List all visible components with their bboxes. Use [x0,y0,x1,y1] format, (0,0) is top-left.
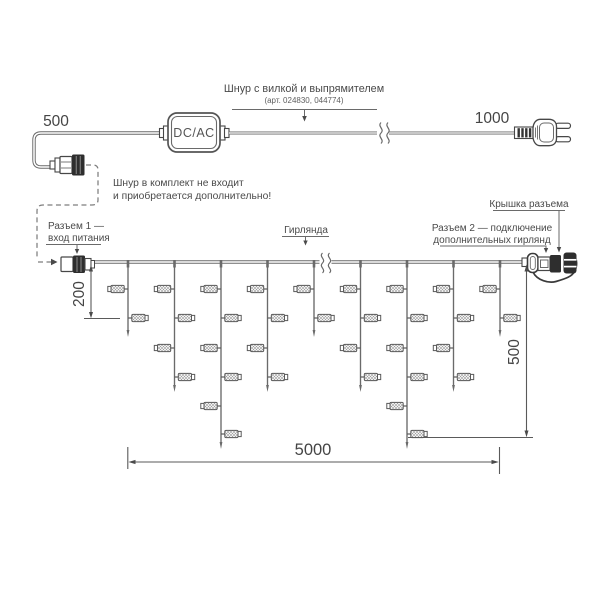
arrow-down-icon [557,247,561,253]
light-bulb-icon [433,285,453,292]
dcac-adapter: DC/AC [160,113,230,152]
top-cord-title: Шнур с вилкой и выпрямителем [224,83,384,95]
light-bulb-icon [175,373,195,380]
connector-cover-cap [564,253,577,274]
light-bulb-icon [387,402,407,409]
dashed-connection-path [37,165,98,262]
light-bulb-icon [201,402,221,409]
light-bulb-icon [500,314,520,321]
dashed-arrowhead [51,259,58,265]
callout-connector1: Разъем 1 — вход питания [46,221,110,254]
light-bulb-icon [268,373,288,380]
light-bulb-icon [361,314,381,321]
arrow-down-icon [75,249,79,254]
light-bulb-icon [221,314,241,321]
garland-drop [387,260,427,449]
light-bulb-icon [387,344,407,351]
light-bulb-icon [247,285,267,292]
dim-cord-right: 1000 [475,110,510,127]
garland-drop [201,260,241,449]
light-bulb-icon [175,314,195,321]
svg-text:вход питания: вход питания [48,233,110,244]
top-cord-subtitle: (арт. 024830, 044774) [264,96,343,105]
light-bulb-icon [221,430,241,437]
power-plug [515,119,571,145]
light-bulb-icon [407,314,427,321]
light-bulb-icon [314,314,334,321]
light-bulb-icon [108,285,128,292]
dim-cord-left: 500 [43,113,69,130]
garland-drop [108,260,148,337]
light-bulb-icon [154,285,174,292]
light-bulb-icon [154,344,174,351]
garland-drop [340,260,380,392]
dcac-label: DC/AC [173,126,214,140]
svg-text:Разъем 2 — подключение: Разъем 2 — подключение [432,223,553,234]
light-bulb-icon [247,344,267,351]
light-bulb-icon [128,314,148,321]
garland-break [320,253,332,274]
dim-garland-length: 5000 [295,441,332,459]
svg-text:дополнительных гирлянд: дополнительных гирлянд [433,235,551,246]
garland-diagram: 500 DC/AC 1000 [0,0,600,600]
arrow-down-icon [544,248,548,253]
light-bulb-icon [454,373,474,380]
light-bulb-icon [201,285,221,292]
callout-connector2: Разъем 2 — подключение дополнительных ги… [432,223,553,253]
callout-top-cord: Шнур с вилкой и выпрямителем (арт. 02483… [224,83,384,122]
light-bulb-icon [480,285,500,292]
svg-text:Разъем 1 —: Разъем 1 — [48,221,104,232]
garland-drops [108,260,520,449]
light-bulb-icon [433,344,453,351]
garland-drop [480,260,520,337]
light-bulb-icon [340,344,360,351]
garland-drop [294,260,334,337]
svg-text:Шнур в комплект не входит: Шнур в комплект не входит [113,178,244,189]
light-bulb-icon [294,285,314,292]
garland-drop [154,260,194,392]
arrow-down-icon [303,241,307,246]
light-bulb-icon [340,285,360,292]
dim-max-drop: 500 [506,339,523,365]
garland-drop [433,260,473,392]
dim-first-drop: 200 [71,281,88,307]
diagram-page: 500 DC/AC 1000 [0,0,600,600]
arrow-down-icon [302,116,307,122]
light-bulb-icon [361,373,381,380]
garland-drop [247,260,287,392]
svg-text:Крышка разъема: Крышка разъема [489,199,569,210]
garland-connector2 [522,253,577,283]
light-bulb-icon [454,314,474,321]
svg-text:Гирлянда: Гирлянда [284,225,328,236]
light-bulb-icon [221,373,241,380]
note-cord-not-included: Шнур в комплект не входит и приобретаетс… [113,178,271,202]
callout-garland: Гирлянда [282,225,329,246]
light-bulb-icon [407,430,427,437]
light-bulb-icon [407,373,427,380]
svg-text:и приобретается дополнительно!: и приобретается дополнительно! [113,190,271,202]
light-bulb-icon [268,314,288,321]
light-bulb-icon [201,344,221,351]
light-bulb-icon [387,285,407,292]
cord-connector [50,155,85,176]
cord-1000 [229,122,515,144]
